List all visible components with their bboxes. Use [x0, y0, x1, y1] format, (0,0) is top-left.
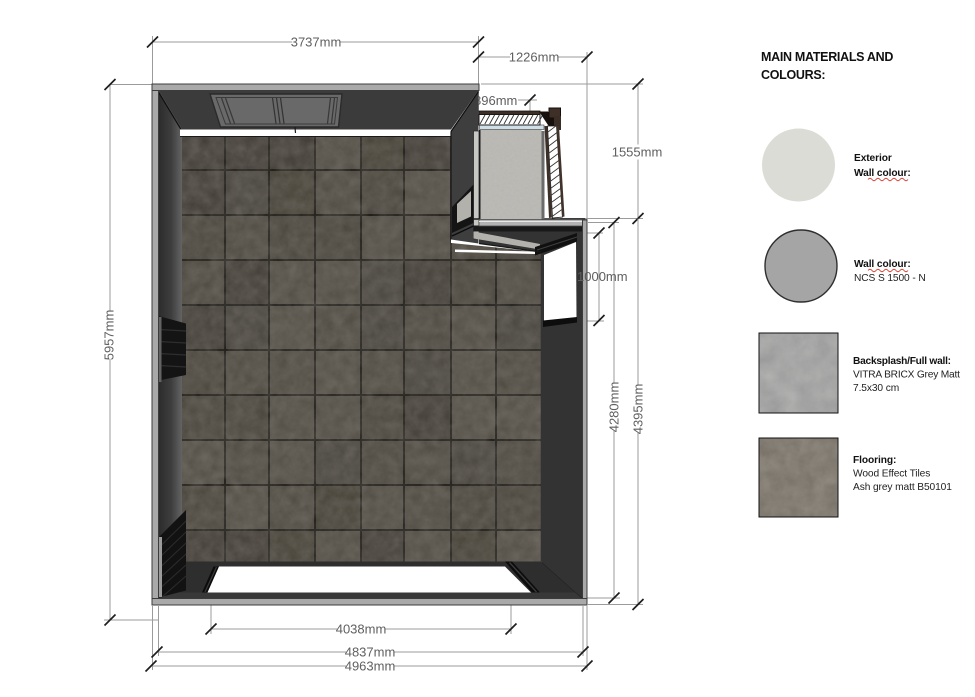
svg-text:Wall colour:: Wall colour: [854, 168, 911, 179]
svg-text:1226mm: 1226mm [509, 50, 560, 65]
svg-text:3737mm: 3737mm [291, 35, 342, 50]
svg-text:4395mm: 4395mm [631, 384, 646, 435]
svg-text:1555mm: 1555mm [612, 145, 663, 160]
svg-text:Flooring:: Flooring: [853, 455, 896, 466]
svg-text:1000mm: 1000mm [577, 269, 628, 284]
svg-text:NCS S 1500 - N: NCS S 1500 - N [854, 273, 926, 284]
svg-text:4038mm: 4038mm [336, 622, 387, 637]
svg-text:Backsplash/Full wall:: Backsplash/Full wall: [853, 356, 951, 367]
svg-text:VITRA BRICX Grey Matt: VITRA BRICX Grey Matt [853, 370, 960, 381]
svg-text:4837mm: 4837mm [345, 645, 396, 660]
svg-text:896mm: 896mm [474, 93, 517, 108]
svg-text:Wall colour:: Wall colour: [854, 259, 911, 270]
svg-text:5957mm: 5957mm [102, 310, 117, 361]
svg-text:7.5x30 cm: 7.5x30 cm [853, 383, 899, 394]
svg-text:Exterior: Exterior [854, 153, 892, 164]
svg-text:4280mm: 4280mm [607, 382, 622, 433]
svg-text:MAIN MATERIALS AND: MAIN MATERIALS AND [761, 50, 893, 64]
svg-text:Ash grey matt B50101: Ash grey matt B50101 [853, 482, 952, 493]
svg-text:COLOURS:: COLOURS: [761, 68, 825, 82]
svg-text:4963mm: 4963mm [345, 659, 396, 674]
svg-text:Wood Effect Tiles: Wood Effect Tiles [853, 469, 930, 480]
